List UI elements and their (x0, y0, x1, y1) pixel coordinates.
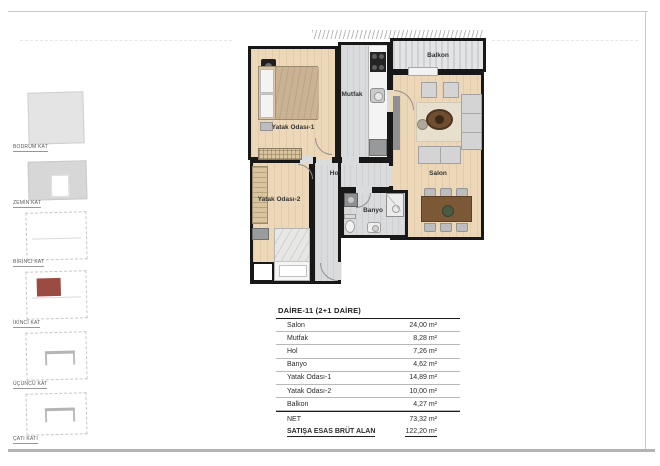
table-row-mutfak: Mutfak 8,28 m² (276, 332, 460, 345)
summary-row-brut: SATIŞA ESAS BRÜT ALAN 122,20 m² (276, 425, 460, 437)
row-value: 8,28 m² (413, 335, 460, 342)
stove-icon (370, 52, 386, 72)
room-label-hall: Hol (305, 170, 365, 177)
floor-label-bodrum: BODRUM KAT (13, 144, 48, 152)
floor-thumb-ikinci-highlighted (26, 271, 85, 317)
table-row-yatak1: Yatak Odası-1 14,89 m² (276, 372, 460, 385)
row-label: Salon (276, 322, 305, 329)
kitchen-sink-icon (370, 88, 385, 103)
row-label: Hol (276, 348, 298, 355)
fridge-icon (369, 139, 387, 156)
closet-icon (252, 166, 268, 224)
room-label-kitchen: Mutfak (336, 91, 368, 98)
row-label: Mutfak (276, 335, 308, 342)
floor-sketch (25, 331, 87, 381)
row-value: 24,00 m² (409, 322, 460, 329)
tv-unit-icon (393, 96, 400, 150)
floor-thumb-zemin (28, 161, 85, 198)
room-label-bath: Banyo (343, 207, 403, 214)
row-value: 14,89 m² (409, 374, 460, 381)
sketch-detail (45, 351, 75, 366)
room-label-bedroom2: Yatak Odası-2 (253, 196, 305, 203)
dining-chair-icon (424, 223, 436, 232)
floor-sketch (25, 211, 87, 261)
neighbor-unit-outline (20, 40, 232, 41)
loveseat-icon (418, 146, 461, 164)
bed-double-icon (258, 66, 318, 120)
row-label: Yatak Odası-1 (276, 374, 331, 381)
page-border-bottom (8, 449, 655, 452)
floor-thumb-cati (26, 393, 85, 433)
floor-thumb-bodrum (28, 92, 82, 142)
table-row-salon: Salon 24,00 m² (276, 319, 460, 332)
highlighted-unit-marker (37, 278, 61, 297)
sketch-detail (45, 408, 75, 423)
row-label: Yatak Odası-2 (276, 388, 331, 395)
row-label: Banyo (276, 361, 307, 368)
washing-machine-icon (344, 193, 358, 207)
floor-sketch (25, 270, 87, 320)
table-rule (276, 411, 460, 412)
row-label: Balkon (276, 401, 308, 408)
brochure-page: BODRUM KAT ZEMİN KAT BİRİNCİ KAT İKİNCİ … (0, 0, 660, 466)
dining-chair-icon (440, 223, 452, 232)
table-title: DAİRE-11 (2+1 DAİRE) (276, 304, 460, 318)
dining-table-icon (421, 196, 472, 222)
neighbor-unit-outline (492, 40, 638, 41)
bath-sink-icon (367, 222, 381, 233)
armchair-icon (443, 82, 459, 98)
floor-plan: Yatak Odası-1 Mutfak Balkon Salon Hol Ba… (243, 26, 489, 302)
floor-label-cati: ÇATI KATI (13, 436, 38, 444)
floor-label-ikinci: İKİNCİ KAT (13, 320, 40, 328)
page-border-right (645, 11, 646, 449)
sofa-icon (461, 94, 482, 150)
summary-row-net: NET 73,32 m² (276, 413, 460, 425)
table-row-balkon: Balkon 4,27 m² (276, 398, 460, 411)
room-label-living: Salon (392, 170, 484, 177)
page-border-top (8, 11, 648, 12)
room-label-bedroom1: Yatak Odası-1 (248, 124, 338, 131)
bed-single-icon (274, 228, 310, 281)
table-row-yatak2: Yatak Odası-2 10,00 m² (276, 385, 460, 398)
row-value: 73,32 m² (409, 416, 460, 423)
door-gap-entry (337, 262, 345, 280)
floor-thumb-birinci (26, 212, 85, 258)
row-value: 122,20 m² (405, 428, 437, 437)
coffee-table-icon (426, 109, 453, 130)
wardrobe-icon (258, 148, 302, 160)
table-row-hol: Hol 7,26 m² (276, 345, 460, 358)
sketch-detail (32, 238, 82, 240)
shaft-void (252, 262, 274, 282)
area-table: DAİRE-11 (2+1 DAİRE) Salon 24,00 m² Mutf… (276, 304, 460, 437)
row-label: NET (276, 416, 301, 423)
toilet-bowl-icon (345, 220, 355, 233)
armchair-icon (421, 82, 437, 98)
sketch-detail (32, 297, 82, 299)
floor-sketch (27, 160, 87, 201)
sketch-detail (51, 175, 70, 197)
floor-label-zemin: ZEMİN KAT (13, 200, 41, 208)
row-value: 4,27 m² (413, 401, 460, 408)
floor-sketch (25, 392, 87, 436)
floor-thumb-ucuncu (26, 332, 85, 378)
row-value: 4,62 m² (413, 361, 460, 368)
toilet-icon (344, 214, 356, 219)
floor-label-ucuncu: ÜÇÜNCÜ KAT (13, 381, 47, 389)
row-label: SATIŞA ESAS BRÜT ALAN (287, 428, 375, 437)
room-label-balcony: Balkon (390, 52, 486, 59)
door-gap-bedroom1 (316, 156, 332, 165)
row-value: 7,26 m² (413, 348, 460, 355)
row-value: 10,00 m² (409, 388, 460, 395)
door-gap-kitchen (342, 156, 359, 165)
table-row-banyo: Banyo 4,62 m² (276, 359, 460, 372)
table-summary: NET 73,32 m² SATIŞA ESAS BRÜT ALAN 122,2… (276, 413, 460, 437)
floor-sketch (27, 91, 84, 144)
dining-chair-icon (456, 223, 468, 232)
balcony-door-sill (408, 67, 438, 76)
floor-label-birinci: BİRİNCİ KAT (13, 259, 44, 267)
dresser-icon (252, 228, 269, 240)
